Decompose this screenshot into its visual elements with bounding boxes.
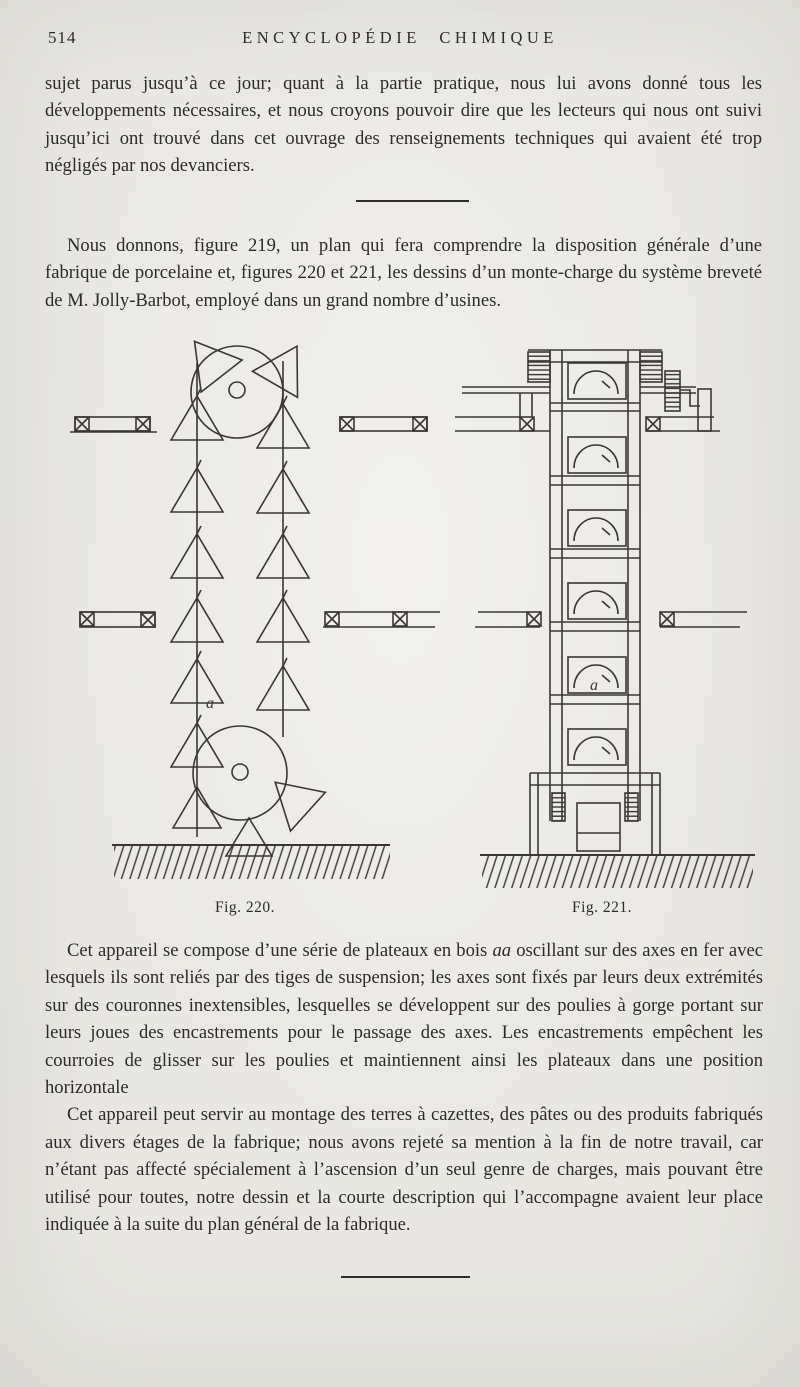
crank-handle: [680, 389, 711, 431]
floor-beam-lower-right-221: [660, 612, 747, 627]
floor-beam-upper-left: [70, 417, 157, 432]
section-rule-top: [356, 200, 469, 202]
pulley-top: [191, 346, 283, 438]
paragraph-3: Cet appareil se compose d’une série de p…: [45, 937, 763, 1101]
label-a-fig221: a: [590, 677, 598, 694]
figure-221-caption: Fig. 221.: [532, 899, 672, 917]
figure-221-drawing: a: [450, 345, 760, 890]
paragraph-3-end: oscillant sur des axes en fer avec lesqu…: [45, 940, 763, 1098]
bearing-foot-right: [625, 793, 638, 821]
floor-beam-lower-middle: [323, 612, 440, 627]
paragraph-2: Nous donnons, figure 219, un plan qui fe…: [45, 232, 762, 314]
floor-beam-lower-left: [80, 612, 155, 627]
paragraph-1: sujet parus jusqu’à ce jour; quant à la …: [45, 70, 762, 179]
figure-220-drawing: a: [60, 335, 460, 895]
page-title: ENCYCLOPÉDIE CHIMIQUE: [0, 28, 800, 48]
floor-beam-upper-left-221: [455, 393, 550, 431]
bearing-blocks-top: [528, 352, 662, 382]
axis-label-aa: aa: [492, 940, 511, 961]
floor-beam-lower-left-221: [475, 612, 541, 627]
floor-beam-upper-right: [340, 417, 427, 431]
label-a-fig220: a: [206, 695, 214, 712]
shaft-rails: [528, 350, 662, 821]
paragraph-4: Cet appareil peut servir au montage des …: [45, 1101, 763, 1238]
paragraph-3-start: Cet appareil se compose d’une série de p…: [67, 940, 492, 961]
gear-wheel: [665, 371, 680, 411]
drive-shaft: [462, 387, 696, 393]
body-text: Cet appareil se compose d’une série de p…: [45, 937, 763, 1238]
floor-beam-upper-right-221: [646, 417, 720, 431]
figure-220-caption: Fig. 220.: [175, 899, 315, 917]
book-page: 514 ENCYCLOPÉDIE CHIMIQUE sujet parus ju…: [0, 0, 800, 1387]
ground-hatching-221: [480, 855, 755, 888]
ground-hatching: [112, 845, 390, 879]
section-rule-bottom: [341, 1276, 470, 1278]
bearing-foot-left: [552, 793, 565, 821]
